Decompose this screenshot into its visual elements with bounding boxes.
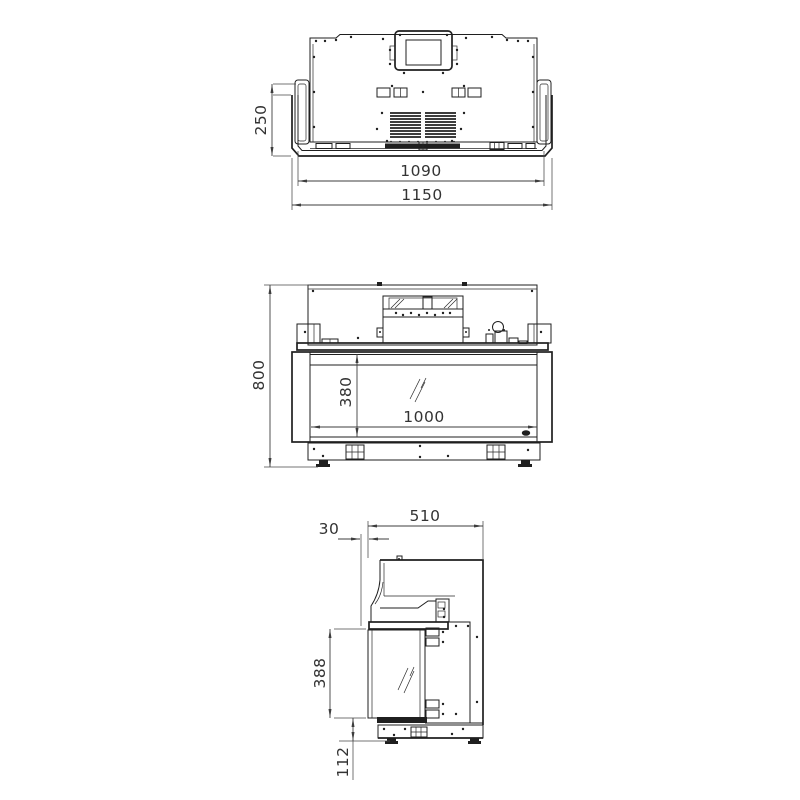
side-view-screw-holes: [383, 558, 478, 736]
door-bottom-rail: [377, 717, 427, 723]
technical-drawing: 250 1090 1150: [0, 0, 800, 800]
adjustable-feet: [316, 460, 532, 467]
top-panel: [310, 35, 537, 143]
side-view: 510 30 388 112: [311, 507, 483, 780]
dimension-112: 112: [334, 718, 390, 780]
side-feet: [385, 738, 481, 744]
front-view-screw-holes: [304, 290, 542, 458]
front-view-body: [292, 282, 552, 467]
dimension-250: 250: [252, 84, 296, 156]
glass-reflection-side: [398, 667, 414, 693]
dimension-510: 510: [368, 507, 483, 560]
top-view: 250 1090 1150: [252, 31, 552, 210]
front-trim-curve: [371, 580, 380, 622]
dimension-388: 388: [311, 629, 366, 718]
back-panel: [308, 285, 537, 345]
dim-label-380: 380: [337, 376, 355, 407]
dim-label-1090: 1090: [400, 162, 441, 180]
dim-label-30: 30: [319, 520, 340, 538]
top-view-screw-holes: [313, 34, 534, 143]
flue-opening: [406, 40, 441, 65]
dim-label-800: 800: [250, 359, 268, 390]
glass-door: [368, 630, 425, 718]
dimension-1000: 1000: [311, 408, 537, 427]
dim-label-1000: 1000: [403, 408, 444, 426]
glass-reflection: [410, 378, 426, 402]
dim-label-250: 250: [252, 104, 270, 135]
door-hinges: [426, 628, 439, 718]
flue-assembly: [377, 296, 469, 343]
front-view: 800 380 1000: [250, 282, 552, 467]
front-right-bracket: [528, 324, 551, 343]
left-bracket: [295, 80, 309, 144]
flue-outlet: [395, 31, 452, 70]
side-view-body: [368, 556, 483, 744]
dimension-30: 30: [319, 520, 389, 626]
ventilation-louvers: [390, 113, 456, 137]
dim-label-510: 510: [409, 507, 440, 525]
dim-label-388: 388: [311, 657, 329, 688]
top-plate: [297, 343, 548, 350]
top-view-body: [292, 31, 552, 156]
pilot-sight: [522, 430, 530, 436]
dimension-380: 380: [337, 354, 357, 437]
valve-blocks: [322, 331, 527, 344]
plinth-brackets: [346, 445, 505, 459]
service-cutouts: [377, 88, 481, 97]
dim-label-1150: 1150: [401, 186, 442, 204]
dim-label-112: 112: [334, 746, 352, 777]
drawing-page: 250 1090 1150: [0, 0, 800, 800]
right-bracket: [537, 80, 551, 144]
